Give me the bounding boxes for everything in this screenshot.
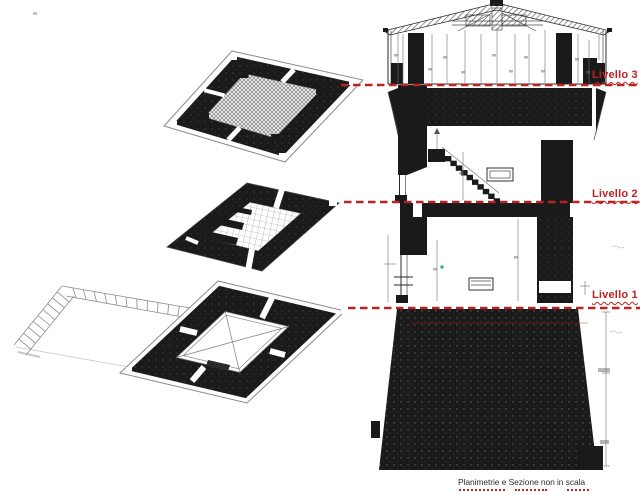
lower-level (384, 217, 590, 303)
level-label-livello-2: Livello 2 (592, 188, 638, 200)
external-stair (14, 286, 74, 355)
tower-base (371, 309, 610, 470)
drawing-canvas (0, 0, 640, 495)
attic-level (388, 28, 606, 84)
spellcheck-underline-scala (567, 489, 589, 491)
height-arrow (434, 128, 440, 149)
scan-artifacts (33, 12, 624, 333)
drawing-caption: Planimetrie e Sezione non in scala (458, 477, 585, 487)
architectural-drawing-sheet: Livello 3 Livello 2 Livello 1 Planimetri… (0, 0, 640, 495)
spellcheck-underline-sezione (515, 489, 547, 491)
teal-pencil-mark (440, 265, 444, 269)
tower-cross-section (371, 0, 612, 470)
floor-plan-level-3 (164, 51, 363, 162)
furniture-upper-room (487, 168, 513, 181)
base-dimension-line (598, 312, 610, 466)
level-2-slab (400, 203, 570, 217)
spellcheck-underline-planimetrie (459, 489, 505, 491)
furniture-lower-room (469, 278, 493, 290)
floor-plan-level-2 (167, 183, 339, 271)
level-label-livello-3: Livello 3 (592, 69, 638, 81)
level-label-livello-1: Livello 1 (592, 289, 638, 301)
roof (383, 0, 612, 35)
floor-plan-level-1 (14, 281, 347, 403)
access-walkway (62, 286, 190, 318)
